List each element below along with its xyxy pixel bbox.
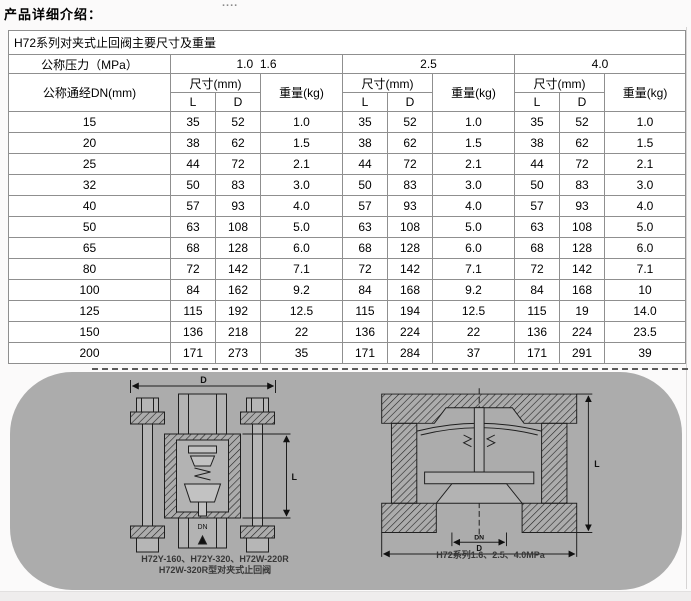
table-cell: 115 [343,301,388,322]
table-cell: 93 [388,196,433,217]
table-cell: 218 [216,322,261,343]
table-cell: 62 [216,133,261,154]
table-cell: 83 [216,175,261,196]
table-cell: 37 [433,343,515,364]
table-cell: 12.5 [433,301,515,322]
table-cell: 128 [216,238,261,259]
table-row: 12511519212.511519412.51151914.0 [9,301,686,322]
table-cell: 38 [343,133,388,154]
table-cell: 171 [343,343,388,364]
valve-drawings-image: D L DN [10,372,682,590]
table-cell: 1.5 [261,133,343,154]
table-row: 80721427.1721427.1721427.1 [9,259,686,280]
table-cell: 142 [388,259,433,280]
weight-label: 重量(kg) [261,74,343,112]
table-row: 4057934.057934.057934.0 [9,196,686,217]
table-cell: 83 [388,175,433,196]
table-cell: 2.1 [261,154,343,175]
pressure-label: 公称压力（MPa） [9,55,171,74]
dn-cell: 80 [9,259,171,280]
dn-cell: 50 [9,217,171,238]
table-row: 2038621.538621.538621.5 [9,133,686,154]
dn-cell: 15 [9,112,171,133]
table-cell: 57 [171,196,216,217]
table-caption: H72系列对夹式止回阀主要尺寸及重量 [9,31,686,55]
table-cell: 35 [343,112,388,133]
table-cell: 142 [216,259,261,280]
table-cell: 50 [171,175,216,196]
table-cell: 5.0 [605,217,686,238]
pressure-row: 公称压力（MPa） 1.0 1.6 2.5 4.0 [9,55,686,74]
table-row: 100841629.2841689.28416810 [9,280,686,301]
table-cell: 72 [515,259,560,280]
table-cell: 2.1 [433,154,515,175]
dn-cell: 25 [9,154,171,175]
table-cell: 44 [343,154,388,175]
table-row: 200171273351712843717129139 [9,343,686,364]
table-cell: 50 [515,175,560,196]
table-cell: 14.0 [605,301,686,322]
table-cell: 72 [216,154,261,175]
table-cell: 192 [216,301,261,322]
col-d: D [388,93,433,112]
table-cell: 57 [343,196,388,217]
table-cell: 224 [560,322,605,343]
table-row: 1535521.035521.035521.0 [9,112,686,133]
dim-label-l: L [594,459,600,469]
dn-cell: 125 [9,301,171,322]
table-cell: 108 [560,217,605,238]
table-cell: 2.1 [605,154,686,175]
table-cell: 72 [343,259,388,280]
table-cell: 128 [388,238,433,259]
table-cell: 62 [388,133,433,154]
table-cell: 68 [343,238,388,259]
table-cell: 72 [388,154,433,175]
table-cell: 84 [515,280,560,301]
decorative-dots: .... [222,0,238,9]
dimensions-table: H72系列对夹式止回阀主要尺寸及重量 公称压力（MPa） 1.0 1.6 2.5… [8,30,686,364]
table-cell: 35 [515,112,560,133]
table-cell: 10 [605,280,686,301]
table-row: 150136218221362242213622423.5 [9,322,686,343]
table-cell: 7.1 [605,259,686,280]
table-caption-row: H72系列对夹式止回阀主要尺寸及重量 [9,31,686,55]
table-row: 65681286.0681286.0681286.0 [9,238,686,259]
table-cell: 19 [560,301,605,322]
dn-cell: 65 [9,238,171,259]
dashed-separator [92,368,688,370]
table-cell: 136 [515,322,560,343]
dn-cell: 150 [9,322,171,343]
table-cell: 72 [560,154,605,175]
table-cell: 1.5 [433,133,515,154]
table-cell: 63 [515,217,560,238]
table-cell: 93 [560,196,605,217]
dim-label-dn: DN [197,524,207,531]
dn-cell: 40 [9,196,171,217]
table-cell: 38 [171,133,216,154]
table-cell: 6.0 [605,238,686,259]
table-cell: 93 [216,196,261,217]
table-cell: 62 [560,133,605,154]
size-label: 尺寸(mm) [515,74,605,93]
table-cell: 9.2 [433,280,515,301]
table-cell: 1.5 [605,133,686,154]
page-right-rule [686,27,687,589]
table-cell: 284 [388,343,433,364]
size-label: 尺寸(mm) [171,74,261,93]
dim-label-dn: DN [474,534,484,541]
table-cell: 171 [171,343,216,364]
right-drawing-caption: H72系列1.6、2.5、4.0MPa [388,550,593,561]
table-cell: 22 [261,322,343,343]
table-cell: 63 [171,217,216,238]
table-cell: 128 [560,238,605,259]
table-header: H72系列对夹式止回阀主要尺寸及重量 公称压力（MPa） 1.0 1.6 2.5… [9,31,686,112]
table-cell: 12.5 [261,301,343,322]
dn-cell: 100 [9,280,171,301]
table-cell: 115 [171,301,216,322]
table-cell: 5.0 [433,217,515,238]
table-cell: 68 [515,238,560,259]
left-valve-drawing: D L DN [98,376,308,554]
left-caption-line2: H72W-320R型对夹式止回阀 [95,565,335,576]
table-cell: 63 [343,217,388,238]
table-cell: 6.0 [433,238,515,259]
table-cell: 273 [216,343,261,364]
table-cell: 224 [388,322,433,343]
table-cell: 57 [515,196,560,217]
col-l: L [171,93,216,112]
table-cell: 35 [261,343,343,364]
table-cell: 35 [171,112,216,133]
dn-cell: 200 [9,343,171,364]
table-cell: 68 [171,238,216,259]
size-header-row: 公称通经DN(mm) 尺寸(mm) 重量(kg) 尺寸(mm) 重量(kg) 尺… [9,74,686,93]
col-l: L [343,93,388,112]
col-l: L [515,93,560,112]
table-cell: 50 [343,175,388,196]
table-cell: 22 [433,322,515,343]
table-cell: 1.0 [433,112,515,133]
left-caption-line1: H72Y-160、H72Y-320、H72W-220R [95,554,335,565]
table-cell: 72 [171,259,216,280]
col-d: D [216,93,261,112]
table-cell: 7.1 [433,259,515,280]
table-cell: 84 [343,280,388,301]
table-cell: 3.0 [433,175,515,196]
table-cell: 3.0 [605,175,686,196]
table-cell: 162 [216,280,261,301]
dn-label: 公称通经DN(mm) [9,74,171,112]
table-cell: 171 [515,343,560,364]
table-cell: 136 [171,322,216,343]
dim-label-l: L [292,472,298,482]
table-row: 2544722.144722.144722.1 [9,154,686,175]
left-drawing-caption: H72Y-160、H72Y-320、H72W-220R H72W-320R型对夹… [95,554,335,577]
table-cell: 9.2 [261,280,343,301]
table-cell: 4.0 [261,196,343,217]
table-cell: 52 [388,112,433,133]
table-cell: 23.5 [605,322,686,343]
table-cell: 6.0 [261,238,343,259]
right-valve-drawing: L DN D [370,388,604,560]
table-cell: 7.1 [261,259,343,280]
table-cell: 4.0 [605,196,686,217]
table-cell: 3.0 [261,175,343,196]
pressure-group-2: 2.5 [343,55,515,74]
weight-label: 重量(kg) [605,74,686,112]
weight-label: 重量(kg) [433,74,515,112]
table-cell: 108 [216,217,261,238]
table-cell: 115 [515,301,560,322]
table-cell: 1.0 [261,112,343,133]
table-cell: 5.0 [261,217,343,238]
size-label: 尺寸(mm) [343,74,433,93]
dn-cell: 20 [9,133,171,154]
table-row: 50631085.0631085.0631085.0 [9,217,686,238]
pressure-group-1: 1.0 1.6 [171,55,343,74]
table-cell: 39 [605,343,686,364]
table-cell: 108 [388,217,433,238]
table-cell: 1.0 [605,112,686,133]
table-cell: 291 [560,343,605,364]
page-title: 产品详细介绍： [4,4,102,23]
table-cell: 52 [560,112,605,133]
table-cell: 142 [560,259,605,280]
table-cell: 136 [343,322,388,343]
table-body: 1535521.035521.035521.02038621.538621.53… [9,112,686,364]
dim-label-d: D [200,376,207,385]
table-cell: 194 [388,301,433,322]
dn-cell: 32 [9,175,171,196]
table-cell: 4.0 [433,196,515,217]
table-row: 3250833.050833.050833.0 [9,175,686,196]
table-cell: 38 [515,133,560,154]
table-cell: 84 [171,280,216,301]
table-cell: 168 [388,280,433,301]
table-cell: 44 [171,154,216,175]
table-cell: 83 [560,175,605,196]
table-cell: 168 [560,280,605,301]
table-cell: 44 [515,154,560,175]
col-d: D [560,93,605,112]
pressure-group-3: 4.0 [515,55,686,74]
table-cell: 52 [216,112,261,133]
